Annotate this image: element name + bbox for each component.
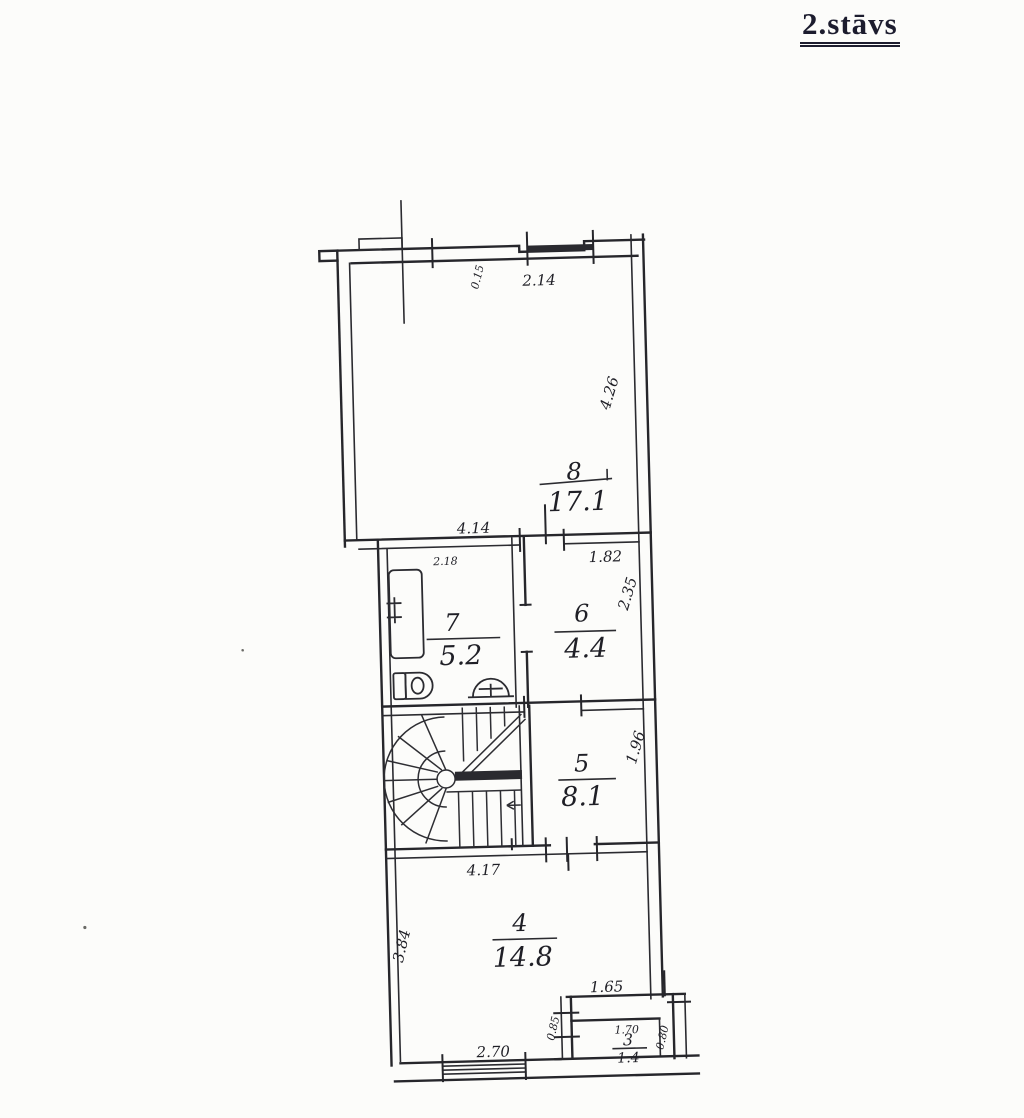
room-7-underline	[427, 638, 499, 640]
dim-room6-width: 1.82	[588, 547, 622, 566]
room-6-area: 4.4	[563, 633, 608, 665]
scan-speck	[83, 926, 86, 929]
dim-room8-width: 4.14	[456, 519, 491, 538]
dim-top-step: 0.15	[468, 264, 486, 291]
room-5-number: 5	[574, 749, 590, 777]
toilet-tank	[393, 673, 406, 699]
right-wall-inner	[631, 235, 651, 999]
room-5-underline	[559, 779, 615, 780]
stair-handrail-bar	[455, 770, 522, 781]
stair-lower-treads	[458, 790, 515, 847]
wall-stair-5-right	[529, 706, 533, 846]
floor-plan-canvas: 8 17.1 7 5.2 6 4.4 5 8.1 4	[0, 0, 1024, 1118]
notch-top-wall	[567, 994, 685, 997]
stair-direction-arrow	[507, 801, 521, 809]
toilet-bowl	[405, 672, 433, 699]
sink	[467, 678, 513, 697]
wall-7-6-left	[512, 538, 516, 707]
right-wall-outer	[643, 235, 663, 997]
room-6-number: 6	[574, 599, 590, 627]
notch-tick	[664, 970, 665, 996]
stair-newel	[437, 770, 455, 788]
room-4-label: 4 14.8	[491, 908, 557, 974]
room-4-underline	[493, 938, 556, 940]
toilet	[393, 672, 433, 699]
room-7-area: 5.2	[439, 640, 483, 672]
toilet-seat	[411, 678, 423, 694]
lower-right-wall-inner	[673, 994, 675, 1058]
top-left-bump	[319, 251, 337, 261]
room-5-area: 8.1	[561, 781, 605, 813]
room-7-label: 7 5.2	[427, 608, 501, 673]
room-5-label: 5 8.1	[558, 749, 616, 813]
lower-right-wall-outer	[685, 994, 687, 1058]
dim-room3-width: 1.70	[614, 1023, 639, 1037]
room-3-underline	[613, 1048, 646, 1049]
winder-staircase	[382, 706, 529, 850]
room-7-number: 7	[444, 609, 461, 637]
dim-notch-width: 1.65	[590, 977, 624, 996]
bottom-window-lines	[443, 1064, 526, 1074]
top-wall-outer	[337, 240, 644, 257]
wall-7-6-right	[524, 538, 528, 707]
wall-7-6-door-ticks	[520, 605, 533, 652]
scan-speck	[241, 649, 244, 652]
dim-room4-height: 3.84	[389, 928, 414, 965]
dim-room8-height: 4.26	[596, 374, 623, 413]
floor-plan: 8 17.1 7 5.2 6 4.4 5 8.1 4	[64, 194, 698, 1092]
room-8-label: 8 17.1	[540, 457, 613, 519]
wall-8-76-upper	[345, 533, 651, 541]
dim-room3-side: 0.80	[653, 1024, 671, 1051]
left-wall-upper-inner	[350, 263, 357, 540]
notch-wall-right	[571, 997, 573, 1059]
dim-top-window: 2.14	[521, 271, 556, 290]
dim-stair-wall: 4.17	[466, 861, 501, 880]
wall-76-s5-ticks	[524, 694, 582, 717]
room-8-area: 17.1	[547, 486, 608, 519]
dim-room7-width: 2.18	[432, 555, 458, 569]
dim-room4-window: 2.70	[475, 1042, 510, 1061]
dim-room6-height: 2.35	[614, 575, 641, 613]
stair-upper-treads	[462, 706, 505, 761]
bottom-wall-outer	[395, 1073, 699, 1081]
room-3-area: 1.4	[617, 1050, 640, 1067]
wall-s5-4-lower	[386, 852, 647, 859]
room3-top-wall	[571, 1018, 659, 1020]
stair-diagonal	[459, 714, 527, 778]
room-6-label: 6 4.4	[554, 599, 616, 666]
room-4-number: 4	[511, 909, 528, 937]
left-wall-upper-outer	[337, 251, 345, 547]
lower-right-tick	[667, 1002, 691, 1003]
room-4-area: 14.8	[492, 941, 553, 974]
notch-wall-left	[561, 997, 563, 1059]
